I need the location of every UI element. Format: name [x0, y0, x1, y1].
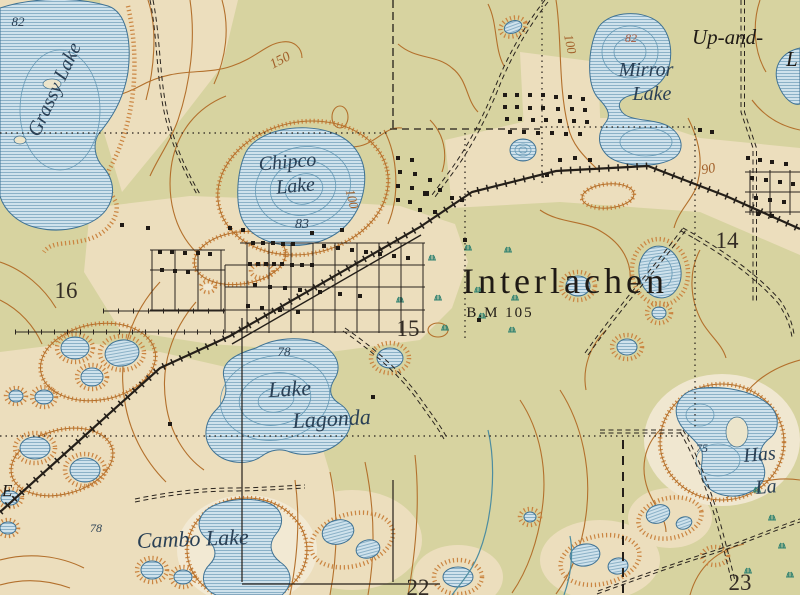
section-number-23: 23 [729, 570, 752, 595]
mirror-lake-label-2: Lake [632, 83, 672, 105]
lagonda-elevation: 78 [278, 344, 292, 359]
hastings-label-1: Has [742, 442, 777, 467]
mirror-lake-elevation: 82 [625, 31, 637, 45]
dry-depression [203, 284, 213, 291]
section-number-14: 14 [716, 228, 740, 253]
section-number-16: 16 [55, 278, 78, 303]
cambo-lake-label: Cambo Lake [136, 524, 249, 553]
grassy-lake [0, 0, 129, 230]
hastings-elevation: 75 [696, 441, 708, 455]
up-and-lake-label: Up-and- [692, 25, 763, 49]
chipco-lake-elevation: 83 [295, 217, 309, 232]
chipco-lake-label-2: Lake [274, 173, 316, 198]
edge-word: E [1, 481, 13, 500]
mirror-lake-label-1: Mirror [618, 59, 674, 81]
section-number-15: 15 [397, 316, 420, 341]
contour-label-90: 90 [700, 161, 716, 178]
map-viewport: Grassy Lake 82 Chipco Lake 83 Mirror Lak… [0, 0, 800, 595]
benchmark-label: B.M 105 [466, 305, 533, 321]
hastings-label-2: La [754, 475, 778, 499]
section-number-22: 22 [407, 575, 430, 595]
cambo-area-elevation: 78 [90, 521, 102, 535]
lagonda-label-1: Lake [267, 375, 312, 402]
up-and-lake-label-cut: L [785, 47, 798, 71]
grassy-lake-elevation: 82 [12, 14, 26, 29]
topographic-map: Grassy Lake 82 Chipco Lake 83 Mirror Lak… [0, 0, 800, 595]
town-name: Interlachen [462, 261, 668, 301]
lagonda-label-2: Lagonda [291, 404, 371, 433]
